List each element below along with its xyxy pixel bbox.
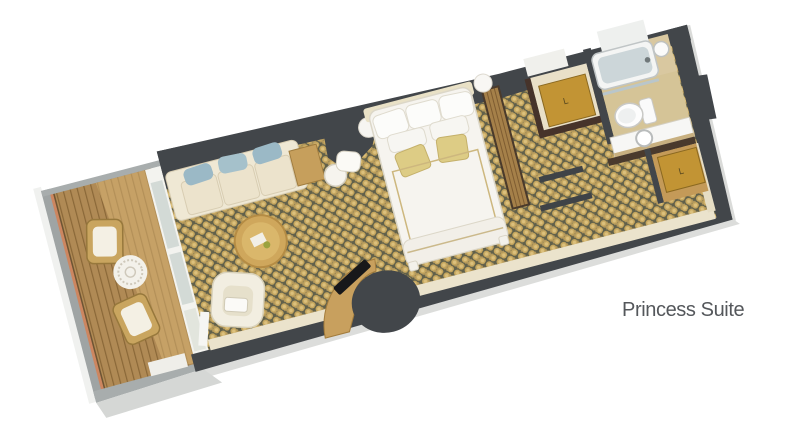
svg-text:Princess Suite: Princess Suite — [622, 299, 745, 321]
